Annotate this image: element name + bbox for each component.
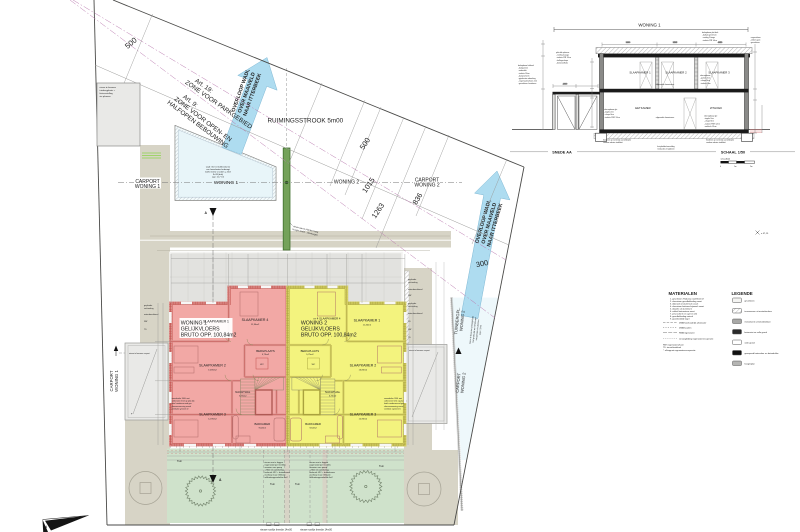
svg-text:BRUTO OPP. 100,84m2: BRUTO OPP. 100,84m2 — [301, 333, 357, 339]
svg-text:- gevelsteen handvorm: - gevelsteen handvorm — [518, 82, 537, 85]
svg-text:nr 4 SLAAPKAMER 4: nr 4 SLAAPKAMER 4 — [314, 316, 341, 320]
svg-text:- parket 2cm: - parket 2cm — [700, 77, 710, 80]
svg-text:SNEDE AA: SNEDE AA — [552, 151, 572, 155]
svg-text:WONING 1: WONING 1 — [638, 23, 661, 28]
svg-text:- tegels 2cm: - tegels 2cm — [604, 111, 614, 114]
svg-text:afgewerkt vloerniveau: afgewerkt vloerniveau — [656, 83, 674, 86]
svg-text:GELIJKVLOERS: GELIJKVLOERS — [301, 327, 340, 333]
svg-text:WC: WC — [312, 364, 316, 366]
svg-text:verharding: verharding — [408, 282, 417, 284]
svg-text:SLAAPKAMER 1: SLAAPKAMER 1 — [354, 319, 381, 323]
svg-text:collectoren 5m2 op plat dak: collectoren 5m2 op plat dak — [384, 400, 407, 403]
svg-text:SLAAPKAMER 4: SLAAPKAMER 4 — [242, 318, 269, 322]
svg-text:Tuin: Tuin — [177, 459, 183, 463]
svg-text:5,75m2: 5,75m2 — [306, 354, 314, 356]
svg-text:SLAAPKAMER 2: SLAAPKAMER 2 — [350, 364, 377, 368]
svg-text:GELIJKVLOERS: GELIJKVLOERS — [181, 327, 220, 333]
svg-text:0: 0 — [720, 166, 721, 168]
svg-text:Tuin: Tuin — [295, 482, 301, 486]
svg-text:waterdoorlatend: waterdoorlatend — [144, 313, 158, 316]
svg-text:fietsenstalling: fietsenstalling — [100, 92, 114, 95]
svg-text:conform advies stabiliteit: conform advies stabiliteit — [706, 141, 726, 144]
svg-text:ventilatie systeem D: ventilatie systeem D — [172, 407, 190, 410]
svg-text:WONING 2: WONING 2 — [414, 183, 439, 189]
svg-text:geplande: geplande — [408, 303, 417, 305]
svg-text:nieuwe rooilijn breedte 14m00: nieuwe rooilijn breedte 14m00 — [300, 529, 333, 532]
svg-text:Tuin: Tuin — [379, 464, 385, 468]
svg-text:WONING 1: WONING 1 — [214, 180, 239, 186]
svg-text:collectoren 5m2 op plat dak: collectoren 5m2 op plat dak — [172, 400, 195, 403]
svg-text:- tegels 2cm: - tegels 2cm — [704, 117, 714, 120]
svg-text:terrasmuren uit metselwerken: terrasmuren uit metselwerken — [745, 310, 773, 313]
svg-text:- isolatie 18cm: - isolatie 18cm — [518, 72, 530, 75]
svg-text:WC: WC — [260, 364, 264, 366]
svg-text:vloerverwarming overal: vloerverwarming overal — [384, 405, 404, 408]
svg-text:BERGPLAATS: BERGPLAATS — [301, 349, 320, 353]
svg-text:WONING 2: WONING 2 — [334, 180, 359, 186]
svg-text:9,64m2: 9,64m2 — [309, 428, 317, 430]
svg-text:zie plannen: zie plannen — [100, 96, 112, 98]
svg-text:BADKAMER: BADKAMER — [254, 422, 270, 426]
svg-text:SLAAPKAMER 1: SLAAPKAMER 1 — [203, 320, 229, 324]
svg-text:waterdoorlatend: waterdoorlatend — [408, 288, 422, 291]
svg-text:6,75m2: 6,75m2 — [329, 396, 337, 398]
svg-text:ketel condenserend gas: ketel condenserend gas — [384, 402, 404, 405]
svg-text:RW: RW — [144, 321, 147, 323]
svg-text:- isolatie PIR 12cm: - isolatie PIR 12cm — [556, 56, 572, 59]
svg-text:LEGENDE: LEGENDE — [732, 291, 753, 296]
svg-text:nieuw te bouwen carport: nieuw te bouwen carport — [409, 349, 430, 352]
svg-text:tuinbergplaats +: tuinbergplaats + — [100, 89, 116, 92]
svg-text:WONING 1: WONING 1 — [135, 184, 160, 190]
svg-text:teelaarde verwijderen: teelaarde verwijderen — [657, 148, 674, 151]
svg-text:volle grond: volle grond — [745, 342, 756, 345]
svg-text:hoogteplan: hoogteplan — [745, 363, 756, 366]
svg-text:SCHAAL 1/50: SCHAAL 1/50 — [721, 151, 745, 155]
svg-text:11,34m2: 11,34m2 — [251, 324, 260, 326]
svg-text:RUIMINGSSTROOK 5m00: RUIMINGSSTROOK 5m00 — [268, 117, 344, 124]
svg-text:waterdoorlatend: waterdoorlatend — [408, 312, 422, 315]
svg-text:nieuw te bouwen: nieuw te bouwen — [100, 86, 117, 89]
svg-text:6,75m2: 6,75m2 — [239, 396, 247, 398]
svg-text:geplande: geplande — [144, 305, 153, 307]
svg-text:x 47,15: x 47,15 — [761, 233, 769, 235]
svg-text:- gevelsteen: - gevelsteen — [750, 41, 760, 44]
svg-text:WONING 2: WONING 2 — [301, 321, 327, 327]
svg-text:12,95m2: 12,95m2 — [208, 419, 217, 421]
svg-text:conform advies stabiliteit: conform advies stabiliteit — [603, 141, 623, 144]
svg-text:DWA huishoudelijk afvalwater: DWA huishoudelijk afvalwater — [679, 322, 707, 325]
svg-text:RWA regenwater: RWA regenwater — [679, 332, 695, 335]
svg-text:verharding: verharding — [144, 308, 153, 310]
svg-text:SLAAPKAMER 3: SLAAPKAMER 3 — [350, 413, 377, 417]
svg-text:BRUTO OPP. 100,84m2: BRUTO OPP. 100,84m2 — [181, 333, 237, 339]
svg-text:- gipskarton afwerking: - gipskarton afwerking — [518, 77, 536, 80]
svg-text:EETKAMER: EETKAMER — [635, 106, 650, 110]
svg-text:*: afkappunt regenwaterrecuper: *: afkappunt regenwaterrecuperatie — [663, 349, 696, 352]
svg-text:- welfsels 13cm: - welfsels 13cm — [704, 126, 717, 128]
svg-text:TD: toezichtsdeksel: TD: toezichtsdeksel — [663, 346, 682, 349]
svg-text:- isolatie PUR 12cm: - isolatie PUR 12cm — [704, 122, 720, 125]
svg-text:WONING 1: WONING 1 — [114, 370, 119, 392]
svg-text:afgewerkt vloerniveau: afgewerkt vloerniveau — [656, 116, 674, 119]
svg-text:schaalbalk: schaalbalk — [721, 159, 730, 161]
svg-text:9,64m2: 9,64m2 — [259, 428, 267, 430]
svg-text:BADKAMER: BADKAMER — [305, 422, 321, 426]
svg-text:infiltratieoppervlakte 4m2: infiltratieoppervlakte 4m2 — [310, 476, 334, 479]
svg-text:betonmix iso volle grond: betonmix iso volle grond — [745, 331, 768, 334]
svg-text:geplande: geplande — [408, 279, 417, 281]
svg-text:SLAAPKAMER 3: SLAAPKAMER 3 — [199, 413, 226, 417]
svg-text:- isolatie PUR 12cm: - isolatie PUR 12cm — [604, 116, 620, 119]
svg-text:12,95m2: 12,95m2 — [359, 419, 368, 421]
svg-text:gewapend betonvloer en betonba: gewapend betonvloer en betonballas — [745, 352, 779, 355]
svg-text:- isolatie 8cm: - isolatie 8cm — [700, 82, 711, 85]
svg-text:ZITHOEK: ZITHOEK — [710, 106, 722, 110]
svg-text:- ballast grind 5cm: - ballast grind 5cm — [702, 34, 717, 37]
svg-text:nieuwe rooilijn breedte 14m00: nieuwe rooilijn breedte 14m00 — [260, 529, 293, 532]
svg-text:11,34m2: 11,34m2 — [363, 325, 372, 327]
svg-text:5,75m2: 5,75m2 — [262, 354, 270, 356]
svg-text:SLAAPKAMER 1: SLAAPKAMER 1 — [629, 71, 651, 75]
svg-text:- zinken goot: - zinken goot — [750, 39, 761, 42]
svg-text:zonneboiler 300L met: zonneboiler 300L met — [172, 397, 191, 400]
svg-text:zonneboiler 300L met: zonneboiler 300L met — [384, 397, 403, 400]
svg-text:MATERIALEN: MATERIALEN — [669, 291, 697, 296]
svg-text:RW: RW — [408, 295, 411, 297]
svg-text:vloerverwarming overal: vloerverwarming overal — [172, 405, 192, 408]
svg-text:plat dak opbouw:: plat dak opbouw: — [556, 51, 570, 54]
svg-text:- regenwaterafvoer zink: - regenwaterafvoer zink — [518, 80, 537, 83]
svg-text:opp: 11,7 m2: opp: 11,7 m2 — [212, 177, 225, 179]
svg-text:BERGPLAATS: BERGPLAATS — [256, 349, 275, 353]
svg-text:verharding: verharding — [408, 306, 417, 308]
svg-text:nieuw te bouwen carport: nieuw te bouwen carport — [129, 352, 150, 355]
svg-text:DWA facaliën: DWA facaliën — [679, 327, 692, 330]
svg-text:verzorgleiding regenwaterrecup: verzorgleiding regenwaterrecuperatie — [679, 338, 714, 341]
svg-text:SLAAPKAMER 2: SLAAPKAMER 2 — [199, 364, 226, 368]
svg-text:RW: RW — [408, 329, 411, 331]
svg-text:13,85m2: 13,85m2 — [359, 370, 368, 372]
svg-text:SLAAPKAMER 3: SLAAPKAMER 3 — [708, 71, 730, 75]
svg-text:- betonwelfsels: - betonwelfsels — [556, 61, 568, 64]
svg-text:9. groenbekleid tegel: 9. groenbekleid tegel — [670, 318, 690, 321]
svg-text:ketel condenserend gas: ketel condenserend gas — [172, 402, 192, 405]
svg-text:13,85m2: 13,85m2 — [208, 370, 217, 372]
svg-text:ventilatie systeem D: ventilatie systeem D — [384, 407, 402, 410]
svg-text:SLAAPKAMER 2: SLAAPKAMER 2 — [665, 71, 687, 75]
svg-text:metselwerk uit betonblokken: metselwerk uit betonblokken — [745, 321, 772, 324]
svg-text:NACHTHAL: NACHTHAL — [235, 390, 251, 394]
svg-text:infiltratieoppervlakte 4m2: infiltratieoppervlakte 4m2 — [265, 476, 289, 479]
svg-text:NACHTHAL: NACHTHAL — [325, 390, 341, 394]
svg-text:dakopbouw plat dak:: dakopbouw plat dak: — [702, 31, 719, 34]
svg-text:- isolatie PIR 14cm: - isolatie PIR 14cm — [702, 39, 718, 42]
svg-text:gevelsteen: gevelsteen — [745, 300, 756, 303]
svg-text:Tuin: Tuin — [270, 482, 276, 486]
